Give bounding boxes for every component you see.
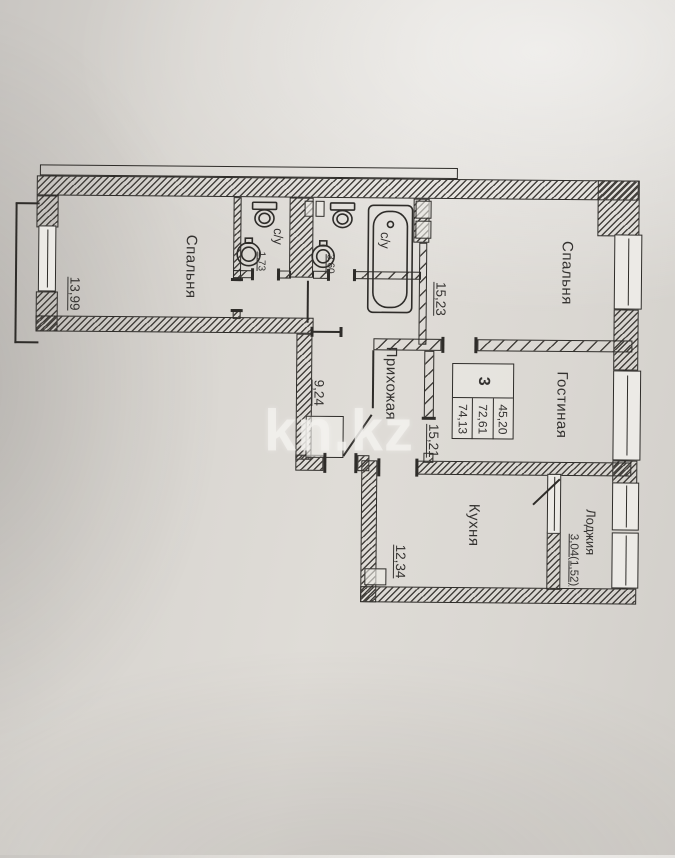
wall-bedroom2-bottom-right xyxy=(477,339,632,352)
stamp-area-cell: 72,61 xyxy=(473,398,494,439)
vent-shaft-icon xyxy=(316,201,325,217)
room-label-bathroom2: с/у xyxy=(378,232,393,249)
door-jamb xyxy=(422,417,436,420)
wall-bathroom1-bottom-right xyxy=(279,270,291,278)
door-jamb xyxy=(339,327,342,337)
watermark: kn.kz xyxy=(264,398,414,465)
stamp-area: 72,61 xyxy=(476,404,490,434)
room-area-bedroom1: 13,99 xyxy=(67,277,82,311)
toilet-icon xyxy=(328,202,356,229)
floorplan-photo: { "watermark": "kn.kz", "colors": { "pap… xyxy=(0,0,675,855)
room-area-bedroom2: 15,23 xyxy=(433,282,448,316)
wall-loggia-divider-lower xyxy=(546,532,561,590)
door-jamb xyxy=(415,459,418,477)
room-label-kitchen: Кухня xyxy=(465,504,482,547)
stamp-living-area: 45,20 xyxy=(496,404,510,434)
room-label-bedroom1: Спальня xyxy=(182,235,200,299)
door-jamb xyxy=(231,309,243,312)
room-area-living: 15,21 xyxy=(426,424,441,458)
wall-hallway-living-divider xyxy=(424,351,435,419)
balcony-outline-bottom xyxy=(14,341,38,343)
apartment-stamp: 3 74,13 72,61 45,20 xyxy=(452,363,515,440)
room-area-loggia: 3,04(1,52) xyxy=(567,534,579,587)
stamp-rooms-count: 3 xyxy=(474,376,492,385)
wall-kitchen-bottom xyxy=(360,586,636,604)
window-icon xyxy=(612,482,639,530)
wall-living-kitchen xyxy=(417,461,631,477)
kitchen-niche xyxy=(364,568,386,585)
door-jamb xyxy=(310,327,313,337)
wall-bedroom1-bottom xyxy=(36,315,314,333)
door-jamb xyxy=(277,268,280,280)
wall-bedroom2-left xyxy=(418,243,427,345)
door-jamb xyxy=(231,278,243,281)
room-area-bathroom1: 1,73 xyxy=(256,252,267,272)
window-icon xyxy=(38,225,57,291)
corridor-door-header xyxy=(312,331,342,333)
door-jamb xyxy=(474,337,477,353)
vent-shaft-icon xyxy=(415,221,431,239)
room-label-living: Гостиная xyxy=(553,371,571,438)
stamp-areas-row: 74,13 72,61 45,20 xyxy=(453,398,513,440)
vent-shaft-icon xyxy=(305,201,314,217)
door-jamb xyxy=(441,337,444,353)
stamp-total-area: 74,13 xyxy=(455,403,469,433)
stamp-total-area-cell: 74,13 xyxy=(453,398,474,439)
corridor-partition-line xyxy=(307,281,309,323)
balcony-outline-left xyxy=(14,203,17,343)
stamp-rooms-cell: 3 xyxy=(453,364,513,399)
wall-corner-topright xyxy=(597,180,639,236)
wall-left-upper xyxy=(36,195,58,227)
toilet-icon xyxy=(250,201,278,228)
room-area-bathroom2: 3,60 xyxy=(325,254,336,274)
wall-top xyxy=(37,175,639,200)
room-label-bedroom2: Спальня xyxy=(558,241,576,305)
window-icon xyxy=(612,370,641,460)
stamp-living-area-cell: 45,20 xyxy=(493,398,513,439)
window-icon xyxy=(614,234,643,309)
balcony-outline-top xyxy=(16,202,40,204)
door-jamb xyxy=(353,269,356,281)
window-icon xyxy=(611,532,638,588)
room-label-bathroom1: с/у xyxy=(271,228,286,245)
room-label-loggia: Лоджия xyxy=(583,509,598,555)
bathtub-icon xyxy=(367,204,415,314)
vent-shaft-icon xyxy=(415,201,431,219)
door-jamb xyxy=(251,268,254,280)
room-area-kitchen: 12,34 xyxy=(393,545,408,579)
